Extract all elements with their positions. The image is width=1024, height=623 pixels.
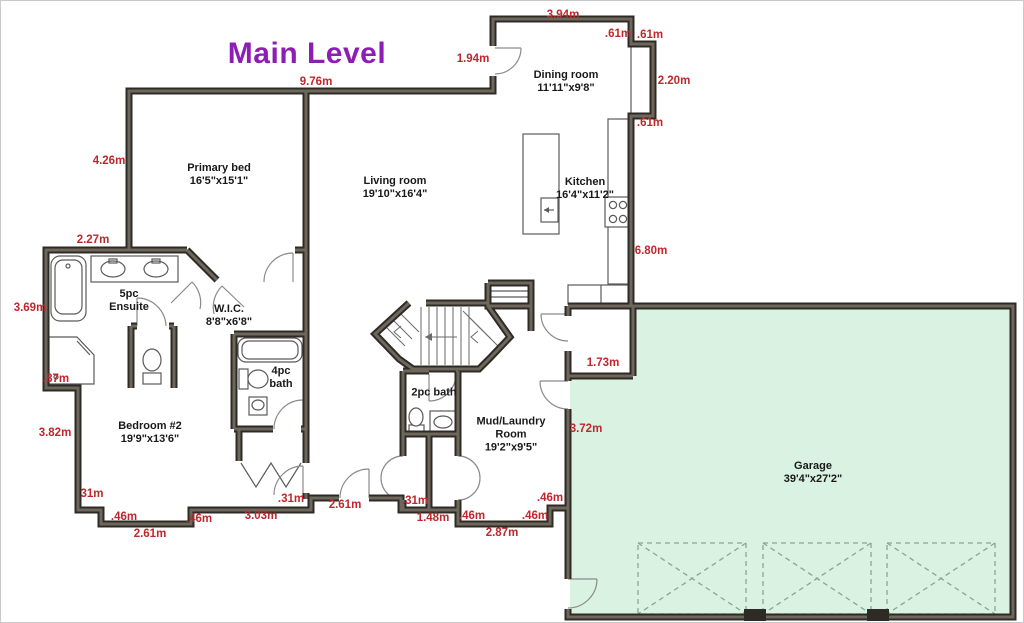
dimension-label: 2.87m: [486, 527, 519, 539]
dimension-label: 31m: [80, 488, 103, 500]
room-label-wic: W.I.C. 8'8"x6'8": [193, 303, 265, 329]
room-label-garage: Garage 39'4"x27'2": [758, 460, 868, 486]
dimension-label: 1.48m: [417, 512, 450, 524]
room-name: Bedroom #2: [95, 420, 205, 433]
room-size: 39'4"x27'2": [758, 473, 868, 486]
dimension-label: .61m: [637, 29, 663, 41]
room-size: 16'5"x15'1": [164, 175, 274, 188]
room-label-dining-room: Dining room 11'11"x9'8": [511, 69, 621, 95]
dimension-label: .31m: [278, 493, 304, 505]
room-label-kitchen: Kitchen 16'4"x11'2": [525, 176, 645, 202]
page-title: Main Level: [228, 37, 386, 71]
dimension-label: 2.27m: [77, 234, 110, 246]
room-label-primary-bed: Primary bed 16'5"x15'1": [164, 162, 274, 188]
dimension-label: .87m: [43, 373, 69, 385]
garage-door-post: [744, 609, 766, 621]
dimension-label: .46m: [537, 492, 563, 504]
dimension-label: 4.26m: [93, 155, 126, 167]
dimension-label: 6.80m: [635, 245, 668, 257]
dimension-label: 2.61m: [329, 499, 362, 511]
garage-door-post: [867, 609, 889, 621]
dimension-label: 3.94m: [547, 9, 580, 21]
room-name: 2pc bath: [411, 387, 456, 400]
room-label-bedroom-2: Bedroom #2 19'9"x13'6": [95, 420, 205, 446]
dimension-label: .31m: [402, 495, 428, 507]
dimension-label: .61m: [605, 28, 631, 40]
dimension-label: 3.72m: [570, 423, 603, 435]
room-label-4pc-bath: 4pc bath: [264, 365, 298, 391]
room-size: 16'4"x11'2": [525, 189, 645, 202]
dimension-label: .46m: [111, 511, 137, 523]
dimension-label: 1.73m: [587, 357, 620, 369]
room-name: Dining room: [511, 69, 621, 82]
room-size: 19'2"x9'5": [465, 441, 557, 454]
dimension-label: .46m: [459, 510, 485, 522]
room-label-living-room: Living room 19'10"x16'4": [335, 175, 455, 201]
dimension-label: 2.61m: [134, 528, 167, 540]
room-label-mud-laundry: Mud/Laundry Room 19'2"x9'5": [465, 416, 557, 455]
room-name: W.I.C.: [193, 303, 265, 316]
room-name: 4pc bath: [264, 365, 298, 391]
room-size: 19'10"x16'4": [335, 188, 455, 201]
room-name: 5pc Ensuite: [103, 288, 155, 314]
room-name: Mud/Laundry Room: [465, 416, 557, 442]
room-name: Living room: [335, 175, 455, 188]
room-label-2pc-bath: 2pc bath: [411, 387, 456, 400]
room-name: Garage: [758, 460, 868, 473]
dimension-label: .61m: [637, 117, 663, 129]
dimension-label: .46m: [186, 513, 212, 525]
room-size: 8'8"x6'8": [193, 316, 265, 329]
room-name: Kitchen: [525, 176, 645, 189]
dimension-label: .46m: [522, 510, 548, 522]
room-size: 19'9"x13'6": [95, 433, 205, 446]
room-label-ensuite: 5pc Ensuite: [103, 288, 155, 314]
dimension-label: 3.69m: [14, 302, 47, 314]
room-size: 11'11"x9'8": [511, 82, 621, 95]
dimension-label: 2.20m: [658, 75, 691, 87]
dimension-label: 3.82m: [39, 427, 72, 439]
dimension-label: 1.94m: [457, 53, 490, 65]
room-name: Primary bed: [164, 162, 274, 175]
dimension-label: 3.03m: [245, 510, 278, 522]
dimension-label: 9.76m: [300, 76, 333, 88]
floor-plan: Main Level Primary bed 16'5"x15'1" Livin…: [0, 0, 1024, 623]
